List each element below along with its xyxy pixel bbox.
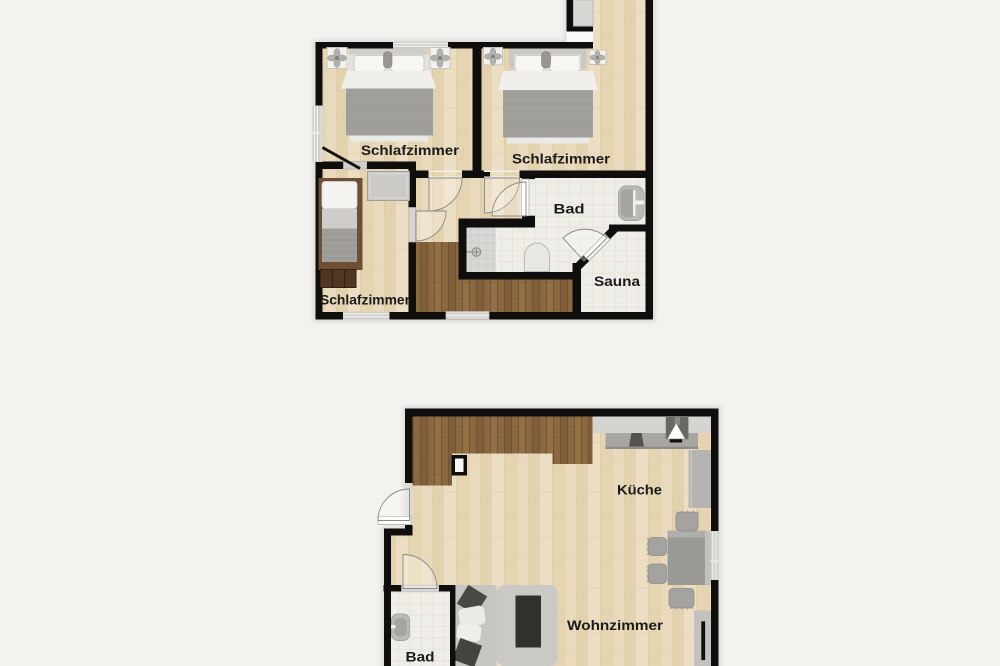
svg-text:Bad: Bad xyxy=(406,649,435,665)
svg-text:Schlafzimmer: Schlafzimmer xyxy=(361,142,460,158)
svg-text:Sauna: Sauna xyxy=(594,273,640,289)
svg-text:Küche: Küche xyxy=(617,482,662,498)
svg-text:Schlafzimmer: Schlafzimmer xyxy=(512,151,611,167)
svg-text:Bad: Bad xyxy=(554,201,585,217)
svg-text:Wohnzimmer: Wohnzimmer xyxy=(567,617,664,633)
svg-text:Schlafzimmer: Schlafzimmer xyxy=(320,293,411,308)
